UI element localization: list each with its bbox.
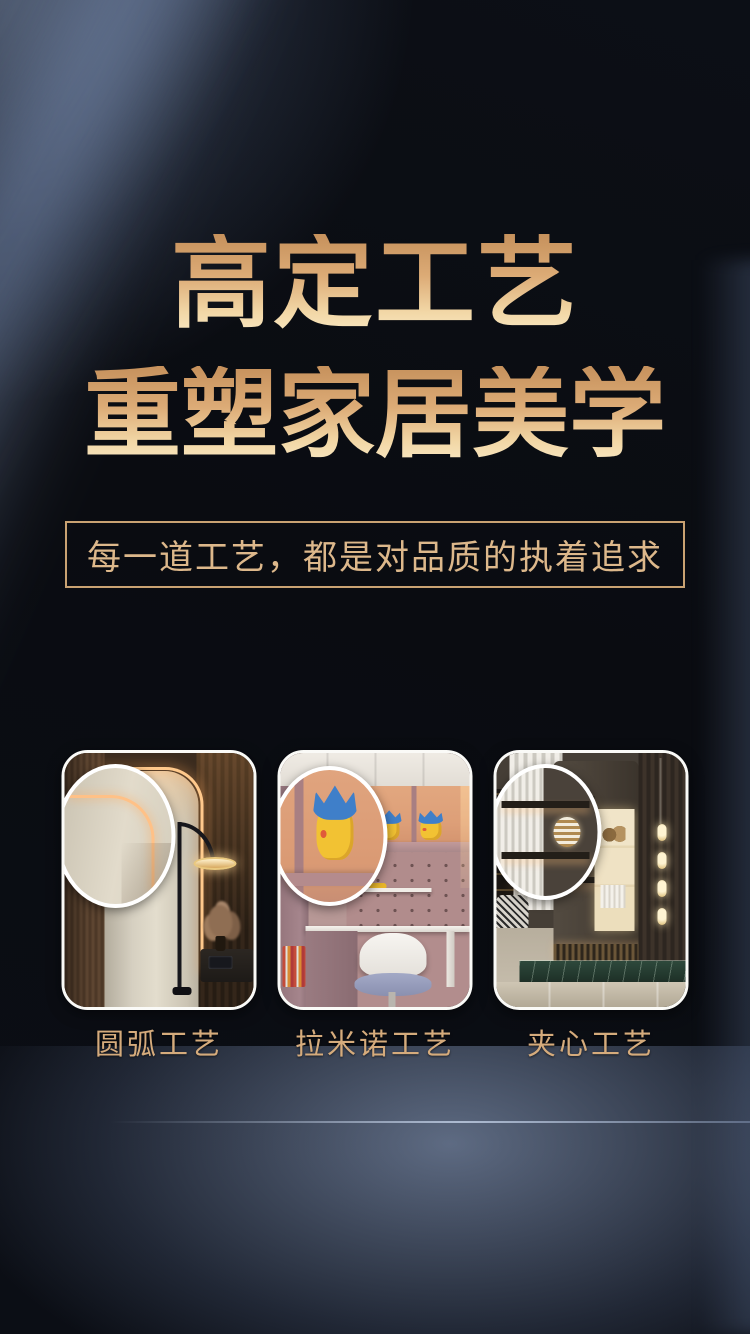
pendant-light-1 bbox=[657, 824, 666, 841]
arc-scene-image bbox=[65, 753, 254, 1007]
craft-card-sandwich[interactable] bbox=[494, 750, 689, 1010]
subtitle-banner: 每一道工艺，都是对品质的执着追求 bbox=[65, 521, 685, 588]
green-marble-plinth bbox=[519, 961, 685, 981]
under-desk-panel bbox=[305, 931, 358, 1007]
headline-line2: 重塑家居美学 bbox=[0, 366, 750, 463]
pikachu-figure-3 bbox=[420, 818, 441, 840]
magnifier-blinds bbox=[494, 768, 544, 896]
subtitle-text: 每一道工艺，都是对品质的执着追求 bbox=[87, 539, 663, 577]
craft-card-lamello[interactable] bbox=[278, 750, 473, 1010]
magnifier-pikachu bbox=[317, 804, 354, 859]
magnifier-shelf-bottom bbox=[502, 852, 589, 859]
lamello-scene-image bbox=[281, 753, 470, 1007]
digital-clock bbox=[208, 956, 233, 969]
decor-vases bbox=[602, 824, 625, 842]
craft-card-wrap-arc: 圆弧工艺 bbox=[62, 750, 257, 1063]
desk-leg bbox=[447, 931, 455, 987]
craft-cards-row: 圆弧工艺 bbox=[62, 750, 689, 1063]
white-books bbox=[600, 885, 625, 908]
promo-poster: 高定工艺 重塑家居美学 每一道工艺，都是对品质的执着追求 bbox=[0, 0, 750, 1334]
pendant-light-4 bbox=[657, 908, 666, 925]
headline-line1: 高定工艺 bbox=[0, 234, 750, 334]
magnifier-shelf-board bbox=[278, 873, 384, 886]
pendant-light-2 bbox=[657, 852, 666, 869]
craft-card-label-arc: 圆弧工艺 bbox=[95, 1021, 223, 1063]
pendant-wire bbox=[660, 758, 662, 824]
craft-card-wrap-sandwich: 夹心工艺 bbox=[494, 750, 689, 1063]
patterned-sofa bbox=[497, 895, 529, 928]
bg-floor-highlight-line bbox=[110, 1121, 750, 1123]
magnifier-striped-vase bbox=[554, 817, 581, 848]
sandwich-detail-magnifier bbox=[494, 764, 602, 900]
plant-vase bbox=[216, 936, 225, 951]
craft-card-wrap-lamello: 拉米诺工艺 bbox=[278, 750, 473, 1063]
craft-card-arc[interactable] bbox=[62, 750, 257, 1010]
right-warm-light bbox=[460, 786, 469, 888]
craft-card-label-lamello: 拉米诺工艺 bbox=[295, 1021, 455, 1063]
magnifier-shadow bbox=[121, 843, 171, 904]
lamello-detail-magnifier bbox=[278, 766, 388, 906]
sandwich-scene-image bbox=[497, 753, 686, 1007]
book-spines bbox=[282, 946, 305, 987]
chair-post bbox=[388, 992, 396, 1007]
arc-detail-magnifier bbox=[62, 764, 176, 908]
tile-floor bbox=[497, 982, 686, 1007]
craft-card-label-sandwich: 夹心工艺 bbox=[527, 1021, 655, 1063]
floor-lamp-pole bbox=[178, 822, 182, 987]
floor-lamp-base bbox=[172, 987, 191, 995]
pendant-light-3 bbox=[657, 880, 666, 897]
bg-bottom-stage-glow bbox=[0, 1046, 750, 1334]
hero-section: 高定工艺 重塑家居美学 bbox=[0, 234, 750, 463]
chair-back bbox=[360, 933, 426, 976]
magnifier-shelf-top bbox=[502, 801, 589, 808]
